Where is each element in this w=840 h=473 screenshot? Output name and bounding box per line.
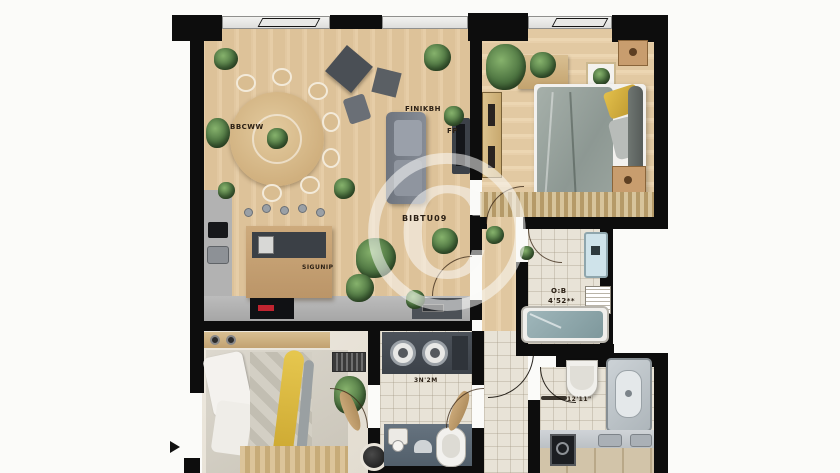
coffee-machine (208, 222, 228, 238)
kitchen-sink (207, 246, 229, 264)
frame-plant (593, 68, 610, 85)
dining-chair (236, 74, 256, 92)
wall-top-seg-1 (330, 15, 382, 29)
headboard-shelf (204, 332, 330, 348)
bar-stool (280, 206, 289, 215)
toilet-lid (442, 434, 460, 458)
wall-right-top (654, 15, 668, 225)
dining-label: BBCWW (230, 123, 264, 131)
speaker-knob (226, 335, 236, 345)
wall-corridor-right (528, 400, 540, 473)
basin (598, 434, 622, 447)
bar-stool (298, 204, 307, 213)
basin (630, 434, 652, 447)
plant (218, 182, 235, 199)
copyright-watermark: © (338, 128, 556, 346)
shower-drain (625, 390, 632, 397)
watermark-code: BIBTU09 (402, 214, 447, 223)
window-symbol-1 (258, 18, 321, 27)
wall-left-bottom-stub (184, 458, 200, 473)
dining-chair (262, 184, 282, 202)
laundry-label: 3N'2M (414, 377, 438, 384)
dining-chair (308, 82, 328, 100)
wall-left (190, 15, 204, 393)
bar-stool (262, 204, 271, 213)
bar-stool (244, 208, 253, 217)
bed-foot-bench (240, 446, 348, 473)
floor-plan-canvas: BBCWW FINIKBH FP SIGUNIP (0, 0, 840, 473)
window-symbol-2 (552, 18, 609, 27)
kitchen-label: SIGUNIP (302, 264, 334, 271)
nightstand-knob (624, 176, 632, 184)
water-heater (584, 232, 608, 278)
bidet-item (414, 440, 432, 453)
island-books (258, 236, 274, 254)
oven-door (556, 442, 569, 455)
dining-chair (272, 68, 292, 86)
toilet-paper (392, 440, 404, 452)
window-top-2 (382, 16, 468, 29)
nightstand-knob (629, 48, 637, 56)
dining-chair (300, 176, 320, 194)
wall-right-bottom (654, 360, 668, 473)
stove-display (258, 305, 274, 311)
entry-arrow-icon (170, 441, 186, 453)
bar-stool (316, 208, 325, 217)
speaker-knob (210, 335, 220, 345)
heater-panel (591, 246, 600, 255)
